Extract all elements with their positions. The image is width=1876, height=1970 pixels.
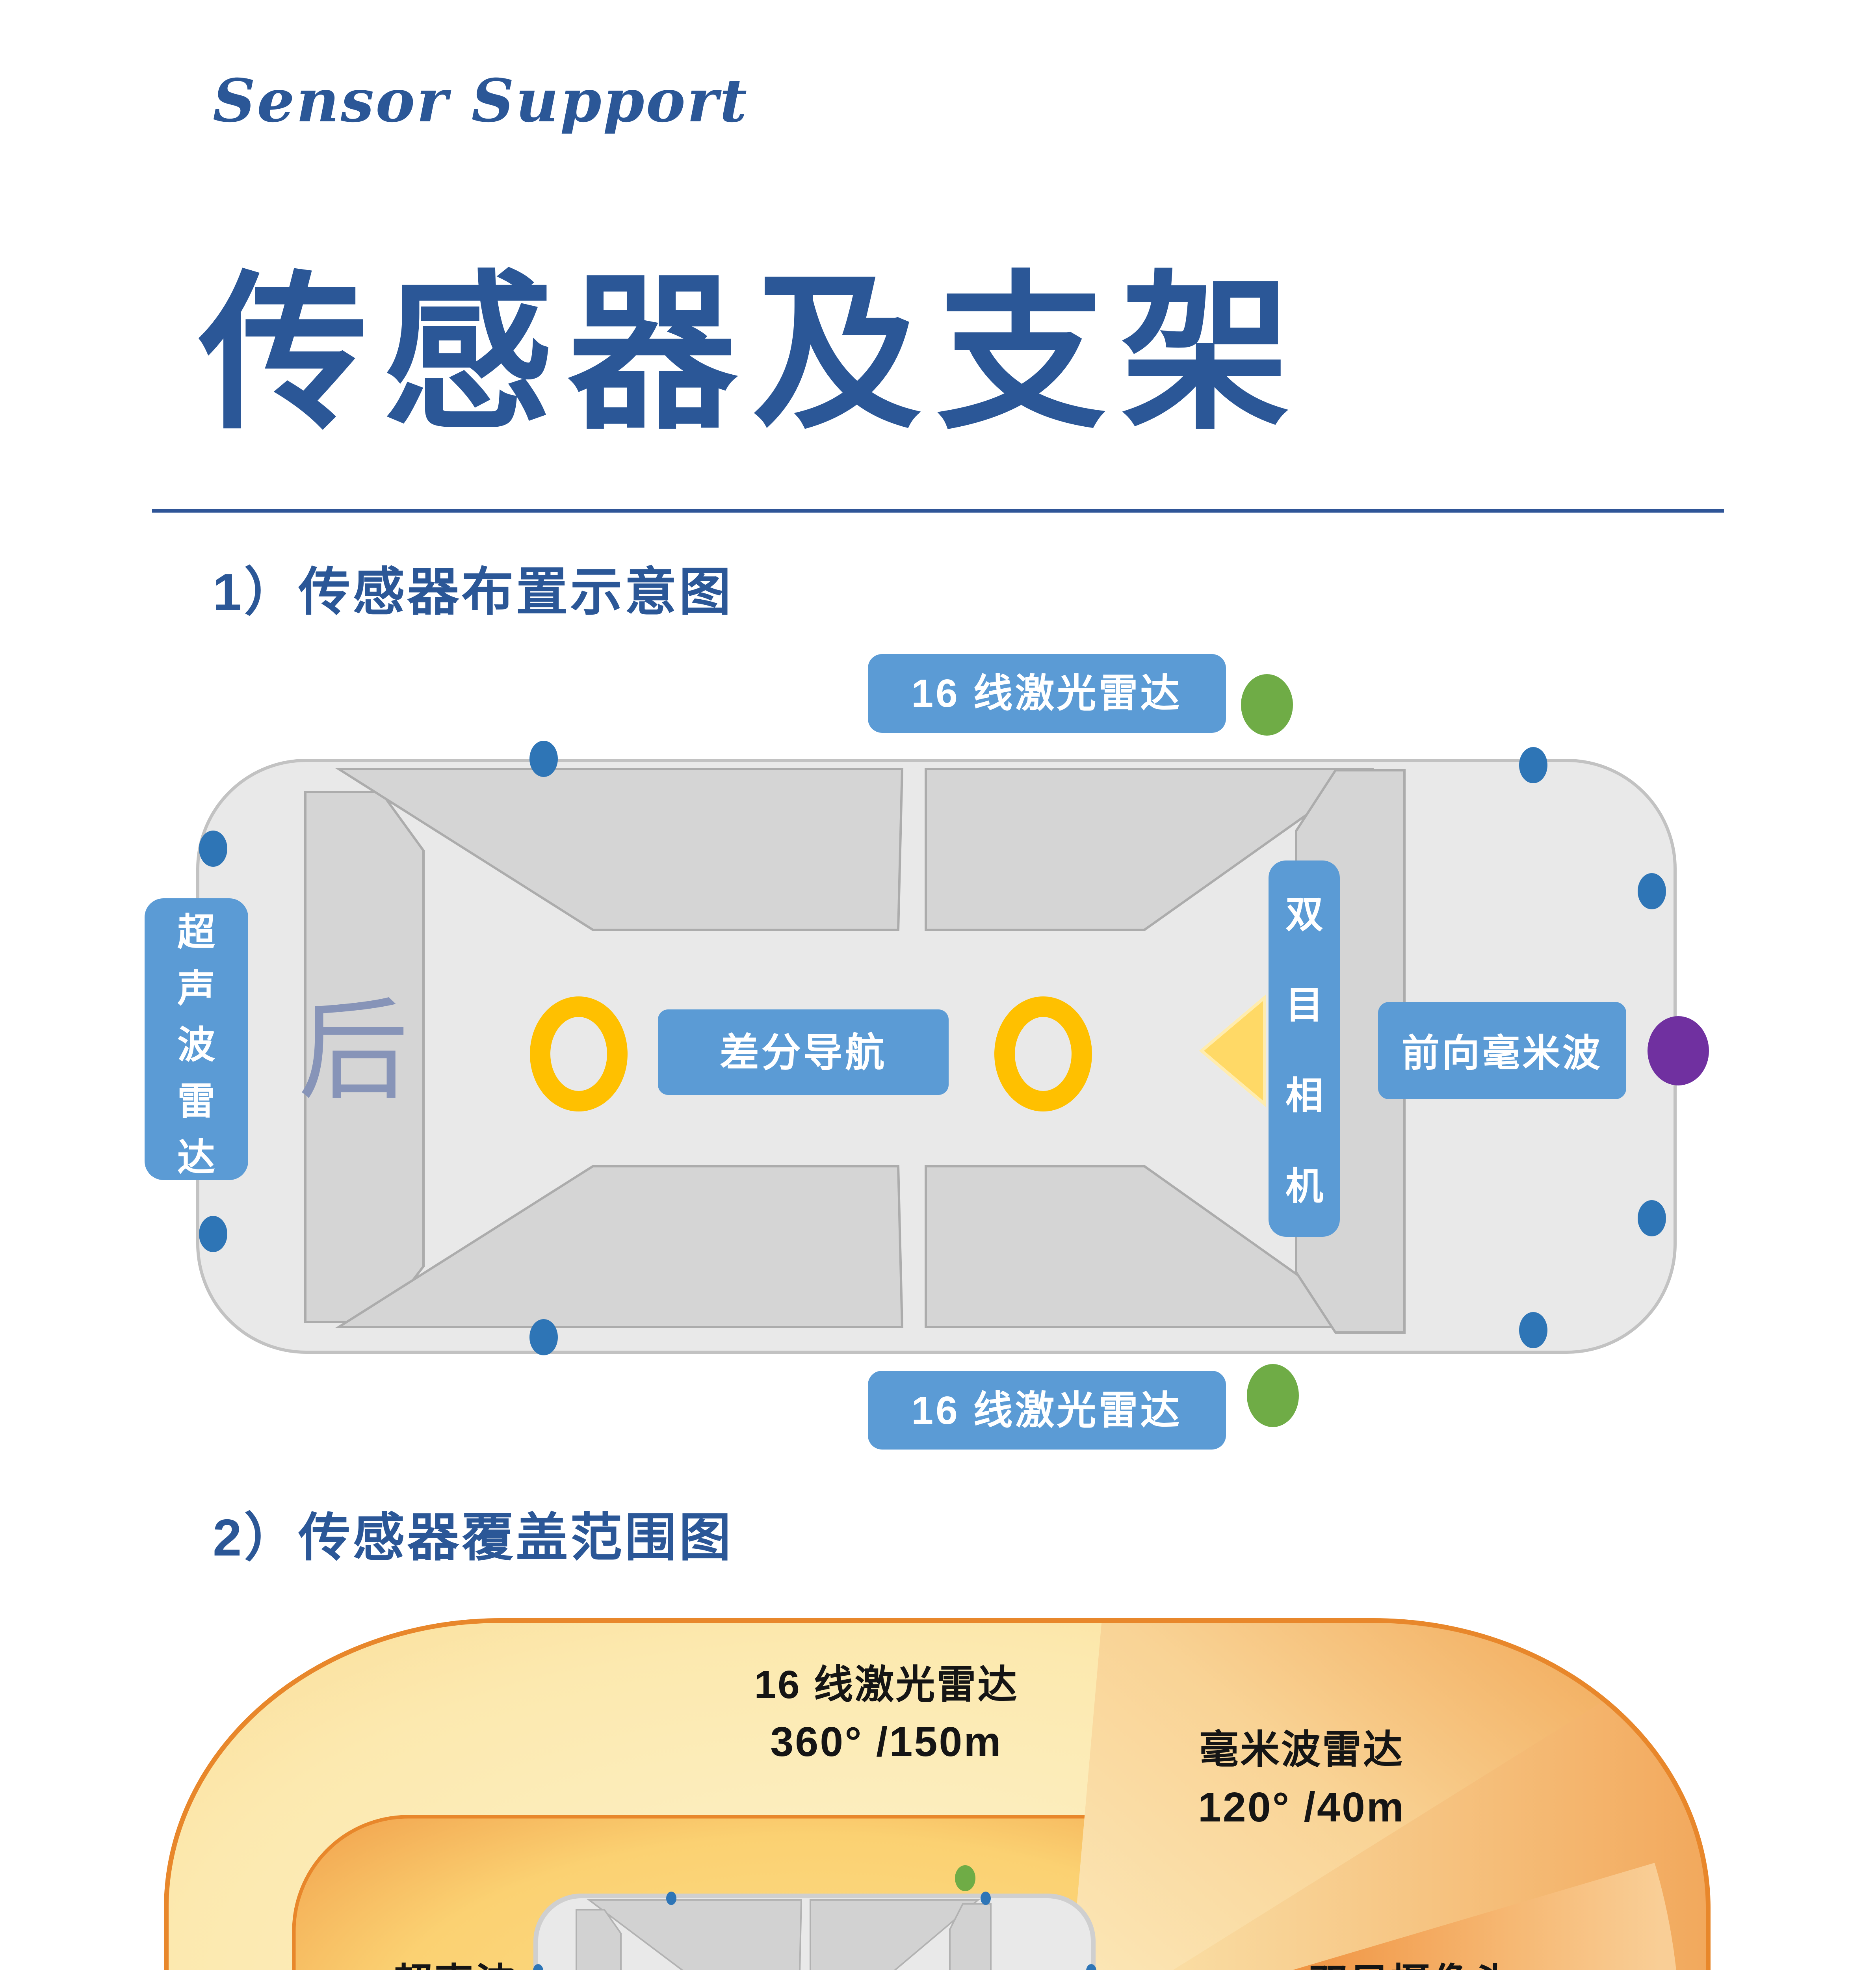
badge-ultrasonic-char: 声	[177, 968, 215, 1010]
mmw-dot-front	[1648, 1016, 1709, 1085]
badge-ultrasonic-char: 雷	[177, 1080, 215, 1123]
badge-ultrasonic-char: 达	[177, 1137, 215, 1179]
sensor-spec: 120° /40m	[1198, 1784, 1405, 1831]
brand-script-title: Sensor Support	[213, 66, 749, 136]
mount-dot	[529, 1319, 558, 1355]
page-title: 传感器及支架	[199, 216, 1305, 461]
sensor-coverage-diagram: 后 16 线激光雷达 360° /150m	[163, 1617, 1711, 1970]
lidar-dot-top	[1241, 674, 1293, 736]
sensor-name: 毫米波雷达	[1199, 1728, 1404, 1772]
mount-dot	[1638, 873, 1666, 909]
badge-binocular-char: 双	[1285, 894, 1323, 936]
sensor-name: 超声波	[393, 1961, 516, 1970]
mount-dot	[1638, 1200, 1666, 1236]
badge-differential-nav-label: 差分导航	[720, 1031, 887, 1075]
sensor-spec: 360° /150m	[770, 1719, 1002, 1765]
badge-lidar-top-label: 16 线激光雷达	[911, 671, 1182, 716]
mount-dot	[1519, 1312, 1547, 1348]
mount-dot	[529, 741, 558, 777]
section-2-heading: 2）传感器覆盖范围图	[213, 1496, 733, 1571]
sensor-name: 双目摄像头	[1309, 1961, 1514, 1970]
mini-lidar-dot-top	[955, 1865, 975, 1891]
mini-mount-dot	[981, 1892, 991, 1905]
badge-binocular-char: 相	[1285, 1075, 1323, 1117]
rear-direction-label: 后	[298, 990, 409, 1113]
section-1-heading: 1）传感器布置示意图	[213, 550, 733, 625]
badge-binocular-char: 目	[1285, 984, 1323, 1026]
badge-ultrasonic-char: 超	[177, 911, 215, 953]
badge-front-mmw-label: 前向毫米波	[1402, 1032, 1603, 1074]
sensor-layout-diagram: 后 16 线激光雷达 16 线激光雷达 差分导航 超 声 波 雷 达 双 目 相…	[145, 652, 1732, 1455]
title-divider-line	[152, 509, 1724, 513]
badge-ultrasonic-char: 波	[177, 1024, 215, 1066]
mount-dot	[1519, 747, 1547, 783]
lidar-dot-bottom	[1247, 1364, 1299, 1427]
badge-binocular-char: 机	[1285, 1165, 1323, 1208]
mini-mount-dot	[666, 1892, 676, 1905]
document-page: Sensor Support 传感器及支架 1）传感器布置示意图 后 16 线激…	[0, 0, 1876, 1970]
sensor-name: 16 线激光雷达	[754, 1663, 1018, 1707]
mount-dot	[199, 831, 227, 867]
mount-dot	[199, 1216, 227, 1252]
badge-lidar-bottom-label: 16 线激光雷达	[911, 1388, 1182, 1433]
